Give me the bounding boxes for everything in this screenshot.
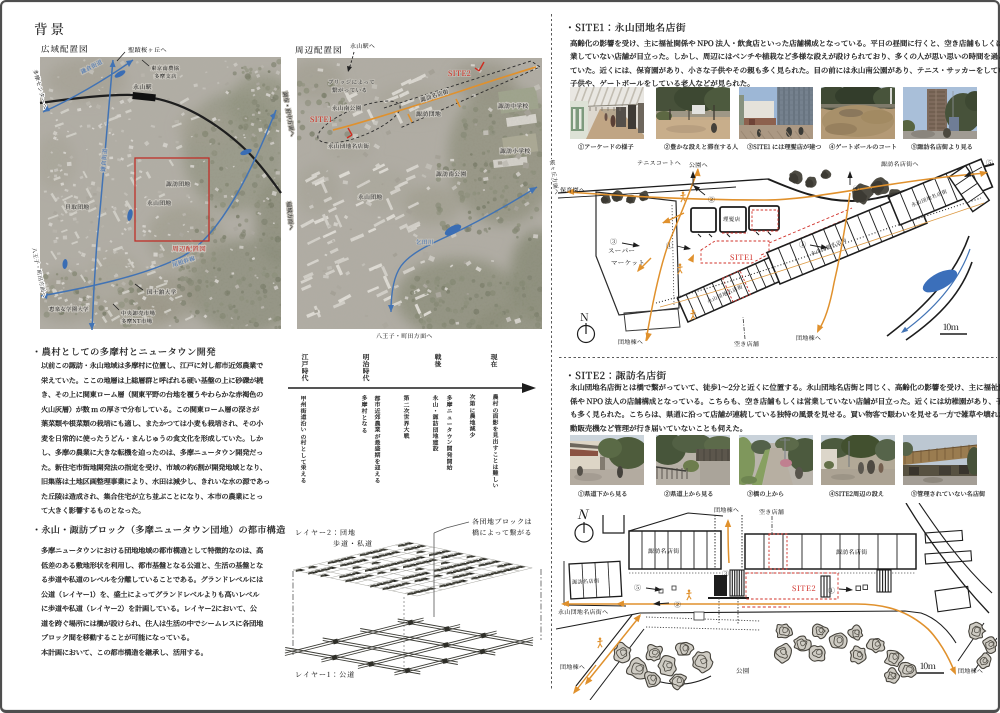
svg-text:空き店舗: 空き店舗: [759, 507, 784, 516]
svg-text:公園へ: 公園へ: [689, 160, 708, 169]
svg-text:10m: 10m: [943, 321, 960, 333]
svg-text:諏訪名店街: 諏訪名店街: [572, 577, 600, 585]
svg-text:中央卸売市場: 中央卸売市場: [121, 309, 155, 317]
svg-text:SITE1: SITE1: [310, 114, 333, 125]
svg-text:橋によって繋がる: 橋によって繋がる: [472, 528, 532, 538]
svg-text:10m: 10m: [920, 660, 937, 672]
svg-text:永山団地: 永山団地: [147, 198, 171, 207]
svg-text:公園: 公園: [736, 666, 750, 675]
svg-text:団地棟へ: 団地棟へ: [618, 337, 643, 346]
svg-text:諏訪名店街へ: 諏訪名店街へ: [881, 159, 919, 168]
svg-text:スーパー: スーパー: [608, 246, 635, 255]
svg-text:①: ①: [828, 586, 835, 596]
svg-text:③: ③: [610, 237, 617, 247]
svg-text:SITE2: SITE2: [792, 583, 816, 594]
svg-text:テニスコートへ: テニスコートへ: [637, 158, 681, 167]
svg-text:諏訪小学校: 諏訪小学校: [500, 146, 531, 155]
svg-text:多摩NT市場: 多摩NT市場: [121, 317, 153, 325]
svg-text:諏訪南公園: 諏訪南公園: [436, 169, 467, 178]
svg-text:N: N: [580, 309, 589, 325]
svg-text:八王子・町田方面へ: 八王子・町田方面へ: [376, 331, 433, 340]
svg-text:SITE1: SITE1: [730, 252, 753, 263]
svg-text:諏訪名店街: 諏訪名店街: [836, 547, 868, 556]
svg-text:繋がっている: 繋がっている: [332, 86, 367, 94]
svg-text:⑤: ⑤: [986, 158, 993, 168]
svg-text:諏訪団地: 諏訪団地: [416, 109, 441, 118]
svg-text:団地棟へ: 団地棟へ: [958, 666, 983, 675]
svg-text:理髪店: 理髪店: [723, 215, 741, 223]
svg-text:②: ②: [708, 195, 715, 205]
svg-text:レイヤー2：団地: レイヤー2：団地: [295, 528, 356, 538]
svg-text:③: ③: [722, 569, 729, 579]
svg-text:各団地ブロックは: 各団地ブロックは: [472, 517, 532, 527]
svg-text:乞田川: 乞田川: [416, 238, 434, 246]
svg-text:永山団地名店街へ: 永山団地名店街へ: [558, 607, 608, 616]
svg-text:②: ②: [674, 600, 681, 610]
svg-text:永山駅へ: 永山駅へ: [350, 41, 375, 50]
svg-text:ブリッジによって: ブリッジによって: [328, 78, 375, 86]
svg-text:空き店舗: 空き店舗: [734, 339, 759, 348]
svg-text:国士舘大学: 国士舘大学: [147, 288, 177, 296]
svg-text:諏訪中学校: 諏訪中学校: [498, 101, 529, 110]
svg-text:団地棟へ: 団地棟へ: [714, 505, 739, 514]
svg-text:多摩支店: 多摩支店: [154, 72, 177, 80]
svg-text:歩道・私道: 歩道・私道: [333, 539, 373, 549]
svg-text:永山駅: 永山駅: [133, 82, 152, 91]
svg-text:永山南公園: 永山南公園: [332, 104, 362, 112]
svg-text:永山団地: 永山団地: [358, 192, 382, 201]
svg-text:周辺配置図: 周辺配置図: [172, 244, 206, 253]
svg-text:レイヤー1：公道: レイヤー1：公道: [295, 670, 355, 680]
svg-text:諏訪名店街: 諏訪名店街: [648, 546, 680, 555]
svg-text:SITE2: SITE2: [448, 68, 471, 79]
svg-text:N: N: [577, 504, 590, 523]
svg-text:保育園へ: 保育園へ: [560, 185, 585, 194]
svg-text:聖蹟桜ヶ丘へ: 聖蹟桜ヶ丘へ: [128, 45, 167, 54]
svg-text:①: ①: [799, 240, 806, 250]
svg-text:永山団地名店街: 永山団地名店街: [328, 142, 369, 150]
svg-text:諏訪団地: 諏訪団地: [166, 179, 190, 188]
svg-text:恵泉女学園大学: 恵泉女学園大学: [49, 305, 89, 313]
svg-text:⑤: ⑤: [634, 583, 641, 593]
svg-text:貝取団地: 貝取団地: [65, 202, 89, 211]
svg-text:団地棟へ: 団地棟へ: [796, 333, 821, 342]
svg-text:団地棟へ: 団地棟へ: [560, 662, 585, 671]
svg-text:東京南農協: 東京南農協: [151, 64, 180, 72]
svg-text:①: ①: [666, 241, 673, 251]
svg-text:④: ④: [853, 184, 860, 194]
